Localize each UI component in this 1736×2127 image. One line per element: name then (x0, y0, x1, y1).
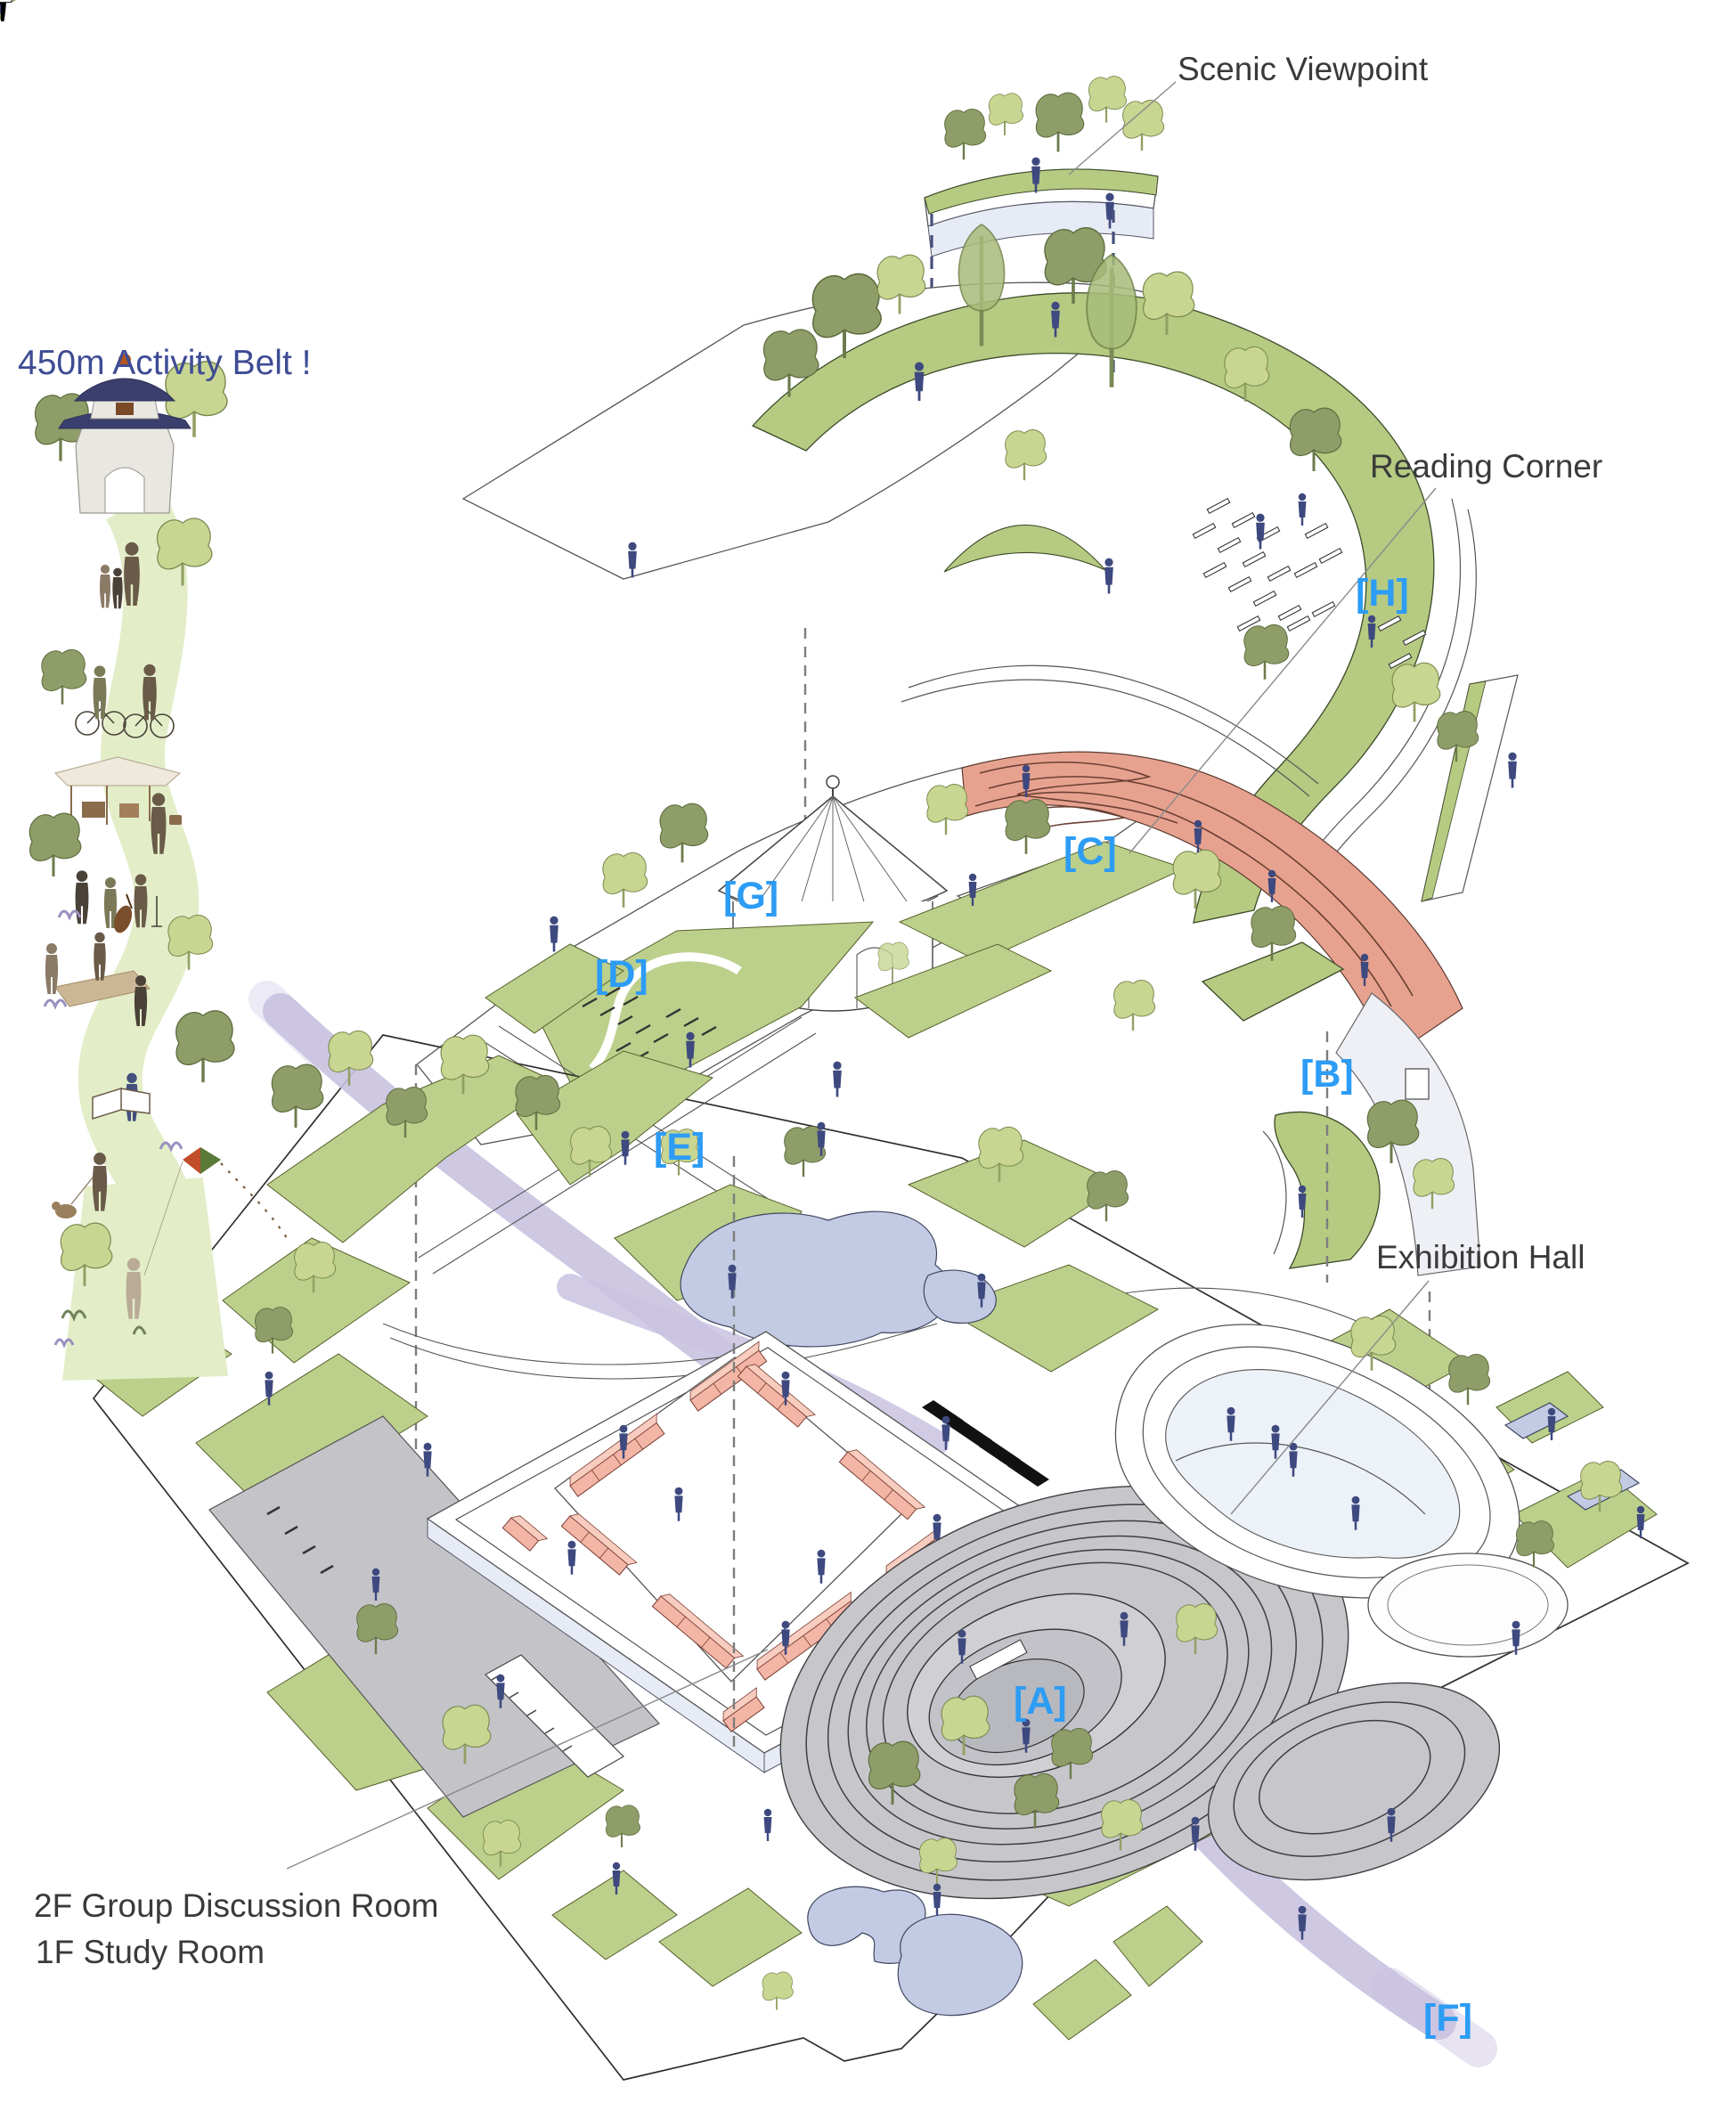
roof-mound (944, 525, 1105, 572)
label-exhibition-hall: Exhibition Hall (1376, 1239, 1585, 1275)
marker-b: [B] (1300, 1053, 1354, 1096)
belt-ribbon-end (62, 1178, 228, 1381)
circular-plaza (1368, 1553, 1568, 1657)
marker-e: [E] (654, 1126, 705, 1169)
upper-pond (681, 1211, 950, 1347)
marker-g: [G] (723, 875, 778, 917)
limb-gate (1406, 1069, 1429, 1099)
belt-scene-dog-walk (52, 1153, 107, 1218)
marker-c: [C] (1064, 830, 1117, 873)
collage-person-symbol (0, 0, 6, 21)
level-scenic-viewpoint (925, 77, 1164, 257)
exploded-axonometric-diagram: Scenic Viewpoint 450m Activity Belt ! Re… (0, 0, 1736, 2127)
marker-h: [H] (1356, 572, 1409, 615)
diagram-canvas: Scenic Viewpoint 450m Activity Belt ! Re… (0, 0, 1736, 2127)
marker-f: [F] (1423, 1997, 1472, 2040)
label-scenic-viewpoint: Scenic Viewpoint (1178, 51, 1429, 87)
marker-a: [A] (1014, 1680, 1067, 1723)
label-courtyard-1f: 1F Study Room (36, 1934, 265, 1970)
lower-pond-east (898, 1914, 1022, 2015)
label-courtyard-2f: 2F Group Discussion Room (34, 1887, 438, 1924)
bench-symbol (0, 0, 12, 3)
label-activity-belt: 450m Activity Belt ! (18, 344, 311, 382)
label-reading-corner: Reading Corner (1370, 448, 1602, 485)
marker-d: [D] (595, 953, 648, 996)
activity-belt-collage (29, 354, 287, 1381)
